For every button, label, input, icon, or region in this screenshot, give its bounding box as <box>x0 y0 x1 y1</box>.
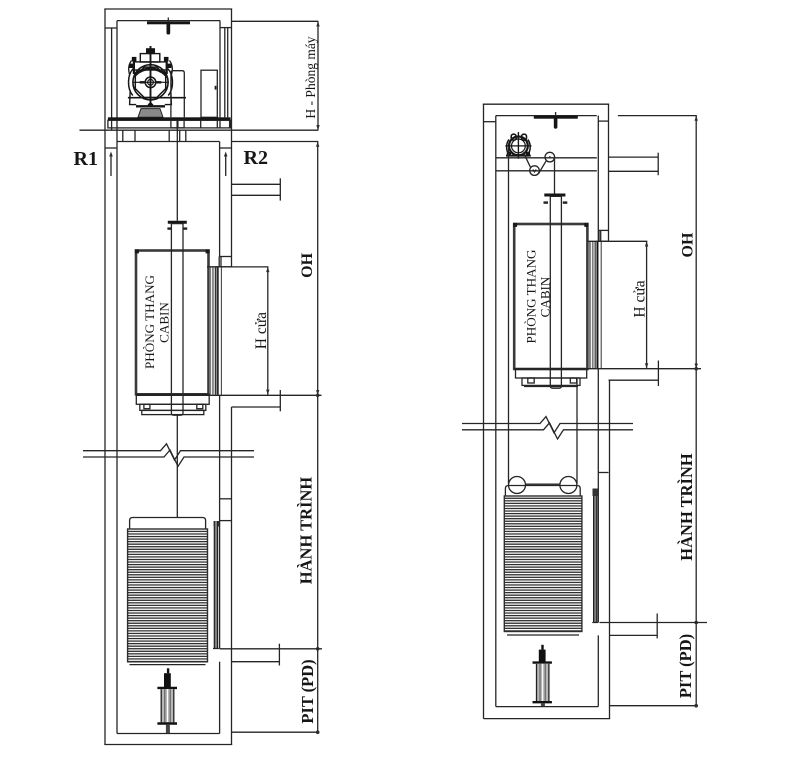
svg-text:R2: R2 <box>244 147 268 169</box>
svg-text:PIT (PD): PIT (PD) <box>298 659 317 723</box>
svg-text:HÀNH TRÌNH: HÀNH TRÌNH <box>677 453 696 561</box>
svg-text:R1: R1 <box>74 148 98 170</box>
svg-text:PIT (PD): PIT (PD) <box>676 634 695 698</box>
svg-text:PHÒNG THANG: PHÒNG THANG <box>524 249 539 344</box>
svg-text:OH: OH <box>299 252 316 277</box>
svg-text:H cửa: H cửa <box>253 312 270 349</box>
svg-text:H cửa: H cửa <box>631 280 648 317</box>
svg-text:OH: OH <box>680 232 697 257</box>
svg-text:CABIN: CABIN <box>156 302 171 343</box>
svg-text:H - Phòng máy: H - Phòng máy <box>303 36 318 118</box>
svg-text:PHÒNG THANG: PHÒNG THANG <box>142 274 157 369</box>
svg-text:HÀNH TRÌNH: HÀNH TRÌNH <box>296 477 315 585</box>
